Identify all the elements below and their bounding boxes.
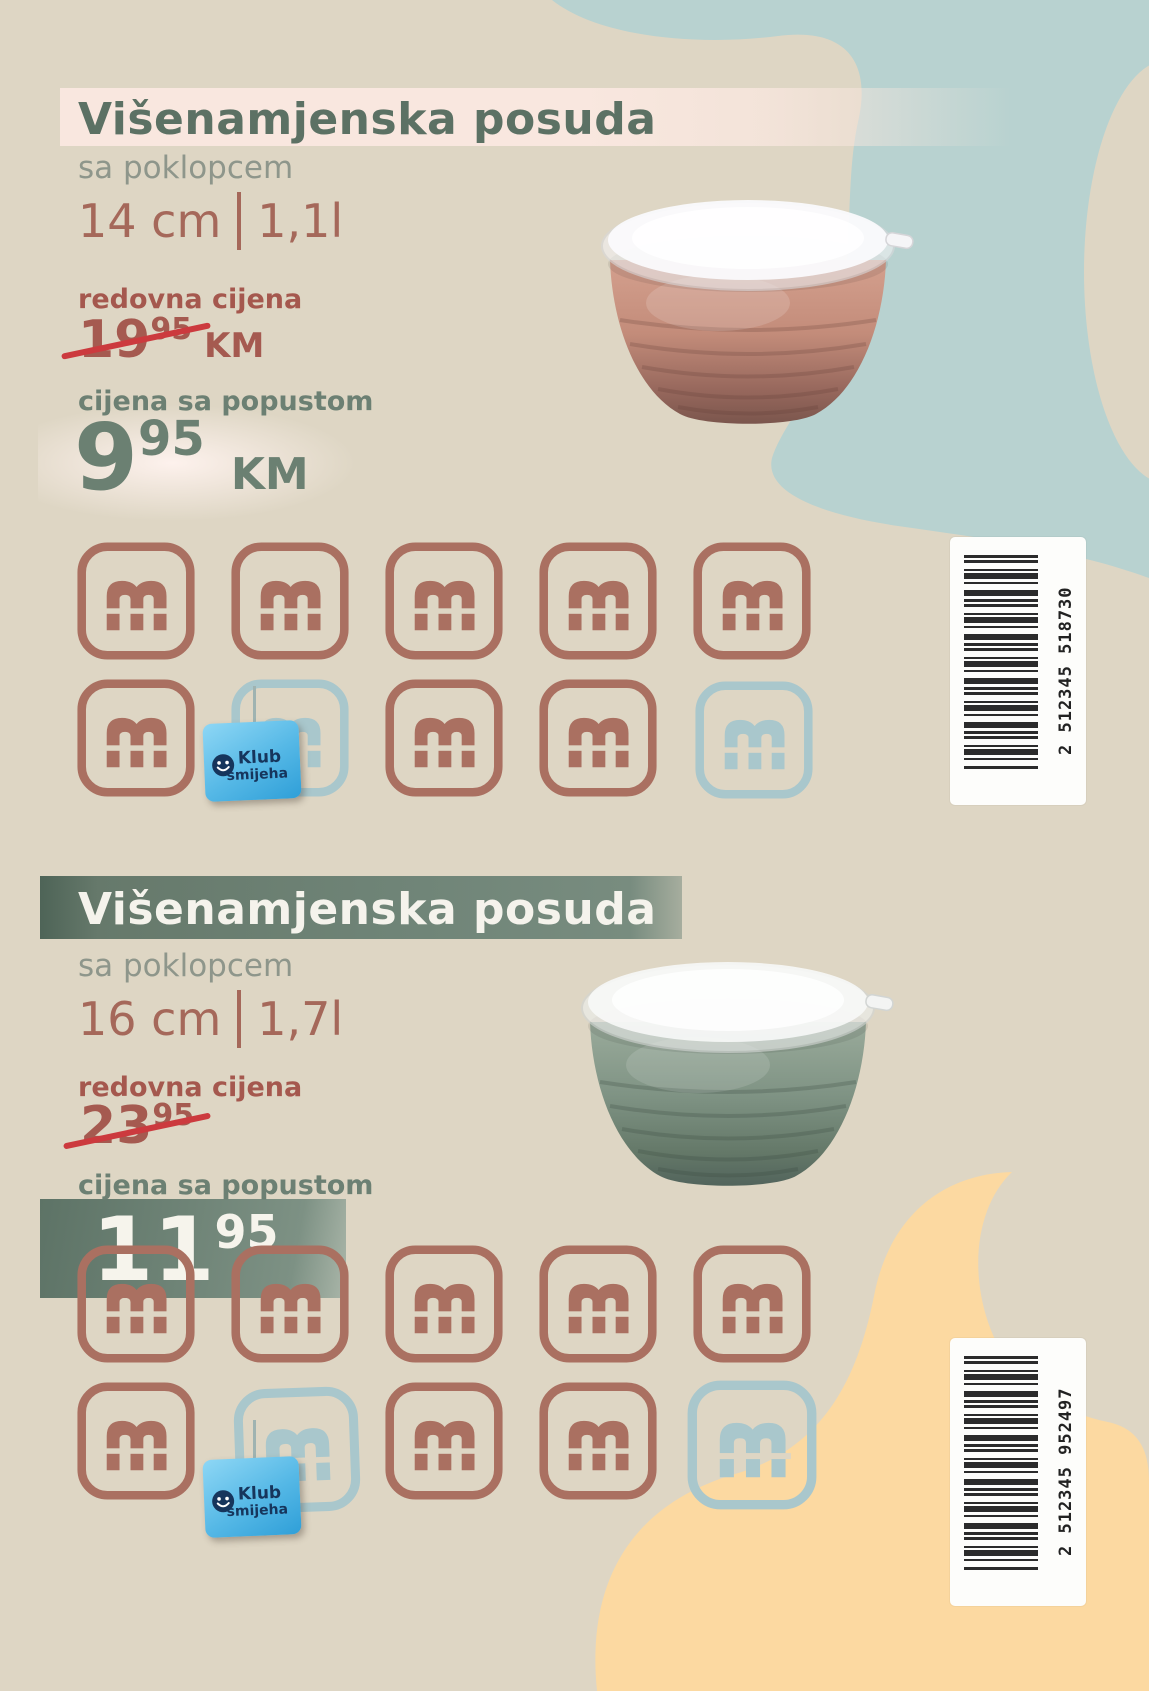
loyalty-stamp-blue	[685, 1378, 819, 1512]
m-logo-icon	[537, 1243, 659, 1365]
product2-discount-price-label: cijena sa popustom	[78, 1170, 373, 1201]
loyalty-stamp-brown	[75, 1380, 197, 1502]
m-logo-icon	[75, 540, 197, 662]
m-logo-icon	[537, 1380, 659, 1502]
product1-volume: 1,1l	[257, 194, 343, 248]
product2-title: Višenamjenska posuda	[78, 884, 656, 935]
product1-regular-price: 1995KM	[78, 314, 264, 366]
barcode-number: 2 512345 952497	[1056, 1338, 1076, 1606]
badge-line2: smijeha	[226, 765, 288, 784]
klub-smijeha-badge: Klub smijeha	[202, 1456, 301, 1538]
loyalty-stamp-brown	[229, 1243, 351, 1365]
loyalty-stamp-brown	[383, 677, 505, 799]
product1-bowl-image	[568, 168, 928, 448]
m-logo-icon	[537, 540, 659, 662]
product2-size: 16 cm	[78, 992, 221, 1046]
loyalty-stamp-brown	[383, 1243, 505, 1365]
loyalty-stamp-brown	[537, 540, 659, 662]
product2-volume: 1,7l	[257, 992, 343, 1046]
m-logo-icon	[75, 1380, 197, 1502]
m-logo-icon	[383, 1380, 505, 1502]
product2-subtitle: sa poklopcem	[78, 948, 293, 984]
loyalty-stamp-brown	[75, 540, 197, 662]
product2-dimensions: 16 cm 1,7l	[78, 990, 343, 1048]
m-logo-icon	[693, 679, 815, 801]
m-logo-icon	[383, 1243, 505, 1365]
loyalty-stamp-brown	[383, 1380, 505, 1502]
divider-bar	[237, 990, 241, 1048]
loyalty-stamp-brown	[537, 1243, 659, 1365]
loyalty-stamp-brown	[75, 677, 197, 799]
barcode-bars	[964, 1356, 1038, 1570]
m-logo-icon	[383, 677, 505, 799]
product2-regular-price: 2395	[80, 1100, 194, 1152]
m-logo-icon	[229, 1243, 351, 1365]
loyalty-stamp-brown	[383, 540, 505, 662]
barcode-bars	[964, 555, 1038, 769]
product2-barcode: 2 512345 952497	[950, 1338, 1086, 1606]
currency-label: KM	[204, 326, 264, 366]
m-logo-icon	[537, 677, 659, 799]
product1-title: Višenamjenska posuda	[78, 94, 656, 145]
product1-subtitle: sa poklopcem	[78, 150, 293, 186]
loyalty-stamp-brown	[691, 540, 813, 662]
divider-bar	[237, 192, 241, 250]
loyalty-stamp-blue	[693, 679, 815, 801]
loyalty-stamp-brown	[75, 1243, 197, 1365]
product1-size: 14 cm	[78, 194, 221, 248]
loyalty-stamp-brown	[229, 540, 351, 662]
klub-smijeha-badge: Klub smijeha	[202, 720, 301, 802]
product1-discount-price: 995KM	[74, 412, 309, 504]
m-logo-icon	[691, 1243, 813, 1365]
m-logo-icon	[75, 677, 197, 799]
currency-label: KM	[231, 449, 309, 500]
product2-stamp-grid	[75, 1243, 813, 1502]
m-logo-icon	[383, 540, 505, 662]
discount-price-value: 9	[74, 404, 138, 511]
loyalty-stamp-brown	[691, 1243, 813, 1365]
product1-dimensions: 14 cm 1,1l	[78, 192, 343, 250]
flyer-page: Višenamjenska posuda sa poklopcem 14 cm …	[0, 0, 1149, 1691]
barcode-number: 2 512345 518730	[1056, 537, 1076, 805]
product1-barcode: 2 512345 518730	[950, 537, 1086, 805]
loyalty-stamp-brown	[537, 677, 659, 799]
product2-bowl-image	[548, 930, 908, 1210]
m-logo-icon	[685, 1378, 819, 1512]
m-logo-icon	[75, 1243, 197, 1365]
loyalty-stamp-brown	[537, 1380, 659, 1502]
m-logo-icon	[229, 540, 351, 662]
product1-stamp-grid	[75, 540, 813, 799]
discount-price-cents: 95	[138, 411, 205, 467]
badge-line2: smijeha	[226, 1501, 288, 1520]
m-logo-icon	[691, 540, 813, 662]
